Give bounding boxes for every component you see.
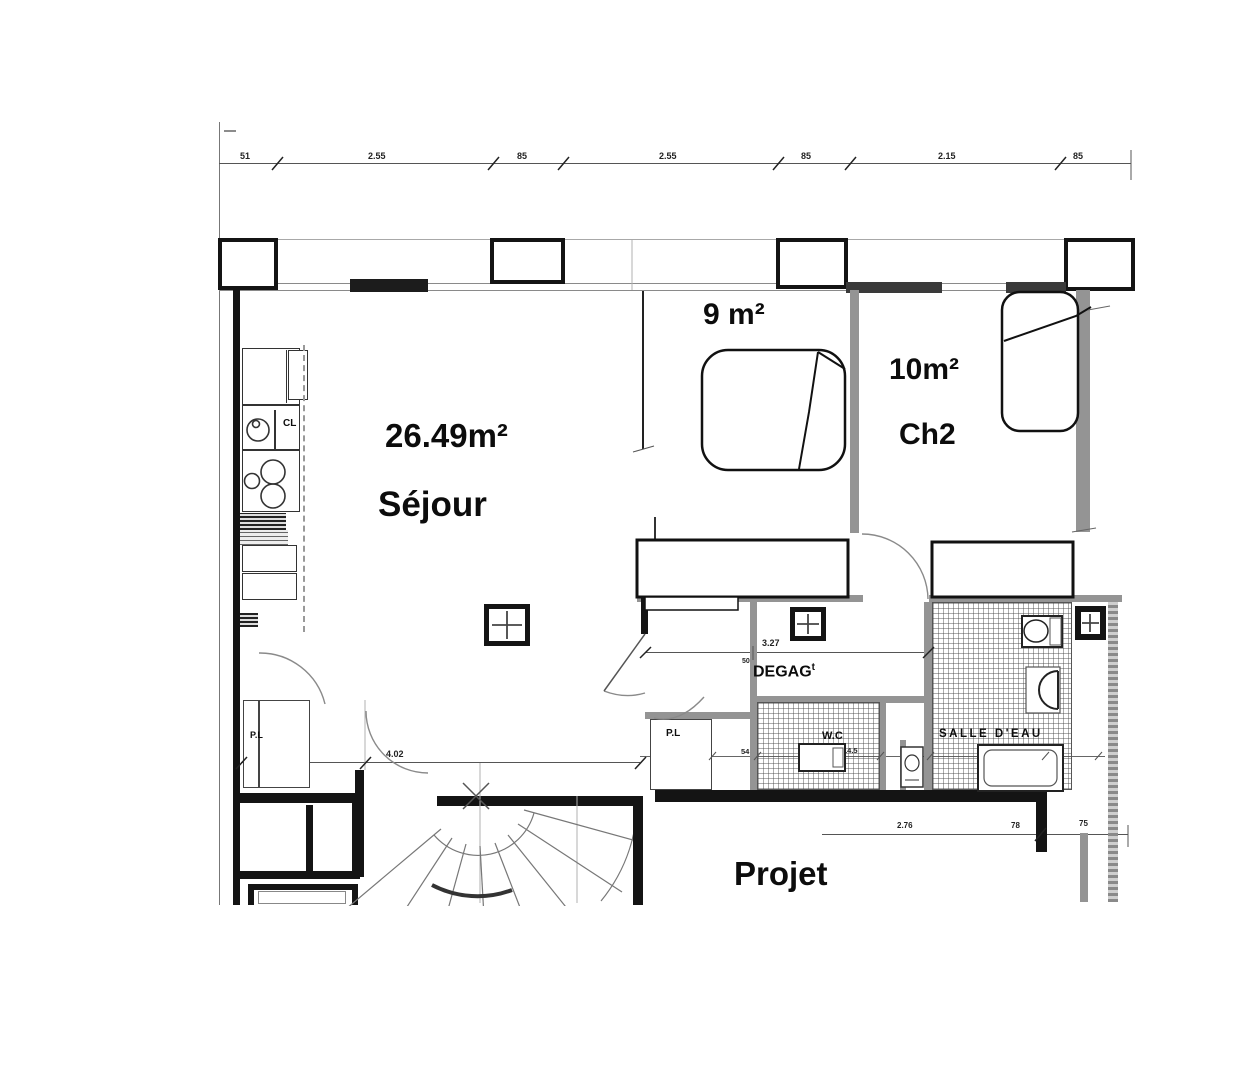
ch1-area-label: 9 m²	[703, 300, 765, 330]
pl-hall-label: P.L	[666, 729, 680, 739]
wall-stair-top	[437, 796, 643, 806]
pl-sejour-label: P.L	[250, 731, 263, 740]
pillar-top-left	[218, 238, 278, 290]
dim-top-0: 51	[240, 152, 250, 161]
column-degag	[790, 607, 826, 641]
sde-floor-tiles	[932, 602, 1072, 790]
wall-stair-right	[633, 796, 643, 905]
wall-wc-duct-2	[900, 740, 906, 792]
kitchen-tile-edge	[303, 345, 305, 632]
spiral-stair	[346, 783, 644, 970]
ch2-name-label: Ch2	[899, 420, 956, 450]
wall-left	[233, 286, 240, 905]
dimension-line-degag	[645, 652, 928, 653]
kitchen-cabinet-1	[242, 545, 297, 572]
wall-bottom-right-return	[1080, 833, 1088, 902]
wall-segment-ch2-right	[1006, 282, 1066, 293]
ch1-name-label: ch1	[729, 381, 774, 407]
dim-top-2: 85	[517, 152, 527, 161]
window-sill-line	[219, 239, 1132, 240]
floor-plan: 51 2.55 85 2.55 85 2.15 85 4.02 3.27 50 …	[0, 0, 1247, 1080]
dim-hall-1: 54	[741, 748, 749, 756]
kitchen-fridge-divider	[286, 350, 287, 403]
wall-sde-left	[924, 602, 932, 792]
pl-sejour-closet	[243, 700, 310, 788]
ch2-area-label: 10m²	[889, 355, 959, 385]
column-sejour	[484, 604, 530, 646]
dimension-line-top	[219, 163, 1131, 164]
pl-hall-closet	[650, 719, 712, 790]
radiator-top	[350, 279, 428, 292]
llroom-wall-right	[352, 796, 360, 878]
wall-sejour-bottom	[233, 793, 363, 803]
wall-corridor-right	[929, 595, 1122, 602]
pillar-top-center-left	[490, 238, 565, 284]
partition-sejour-ch1	[633, 291, 655, 540]
sejour-name-label: Séjour	[378, 487, 487, 522]
dim-top-1: 2.55	[368, 152, 386, 161]
llroom2-wall-left	[248, 884, 254, 905]
llroom-divider	[306, 805, 313, 875]
bed-ch1	[702, 350, 845, 470]
llroom2-wall-top	[248, 884, 358, 890]
plan-vector-overlay	[0, 0, 1247, 1080]
kitchen-hatch-dark	[240, 513, 286, 530]
wall-sde-right	[1108, 602, 1118, 902]
pl-sejour-divider	[258, 700, 260, 788]
llroom-wall-bottom	[233, 871, 360, 879]
sde-label: SALLE D'EAU	[939, 729, 1043, 741]
dim-sejour-width: 4.02	[386, 750, 404, 759]
column-sde	[1075, 606, 1106, 640]
llroom2-inner	[258, 891, 346, 904]
dim-degag-depth: 50	[742, 658, 750, 665]
dim-bottom-1: 78	[1011, 822, 1020, 830]
kitchen-tall-unit	[288, 350, 308, 400]
dim-top-3: 2.55	[659, 152, 677, 161]
wall-bottom-main	[655, 790, 1047, 802]
sejour-area-label: 26.49m²	[385, 419, 508, 452]
kitchen-sink-divider	[274, 410, 276, 450]
kitchen-closet-label: CL	[283, 419, 296, 429]
dim-bottom-2: 75	[1079, 820, 1088, 828]
kitchen-small-block	[240, 613, 258, 627]
dim-top-5: 2.15	[938, 152, 956, 161]
pillar-top-right	[1064, 238, 1135, 291]
llroom2-wall-right	[352, 884, 358, 905]
wall-pl-top	[645, 712, 753, 719]
wall-ch1-ch2	[850, 290, 859, 533]
door-leaf-degag	[604, 634, 645, 691]
kitchen-cooktop	[242, 450, 300, 512]
wall-segment-ch1-ch2	[846, 282, 942, 293]
wall-stub-degag	[641, 597, 648, 634]
dim-top-6: 85	[1073, 152, 1083, 161]
dim-bottom-0: 2.76	[897, 822, 913, 830]
wc-label: W.C	[822, 731, 843, 742]
degag-label: DEGAGt	[753, 663, 815, 680]
wc-floor-tiles	[757, 702, 880, 790]
dim-top-4: 85	[801, 152, 811, 161]
pillar-top-center	[776, 238, 848, 289]
dim-degag-width: 3.27	[762, 639, 780, 648]
kitchen-cabinet-2	[242, 573, 297, 600]
project-title: Projet	[734, 857, 828, 890]
wall-bottom-step	[1036, 790, 1047, 852]
wall-ch2-right	[1076, 290, 1090, 532]
wall-pl-wc	[750, 597, 757, 792]
kitchen-hatch-light	[240, 530, 288, 545]
wall-wc-duct-1	[880, 702, 886, 792]
